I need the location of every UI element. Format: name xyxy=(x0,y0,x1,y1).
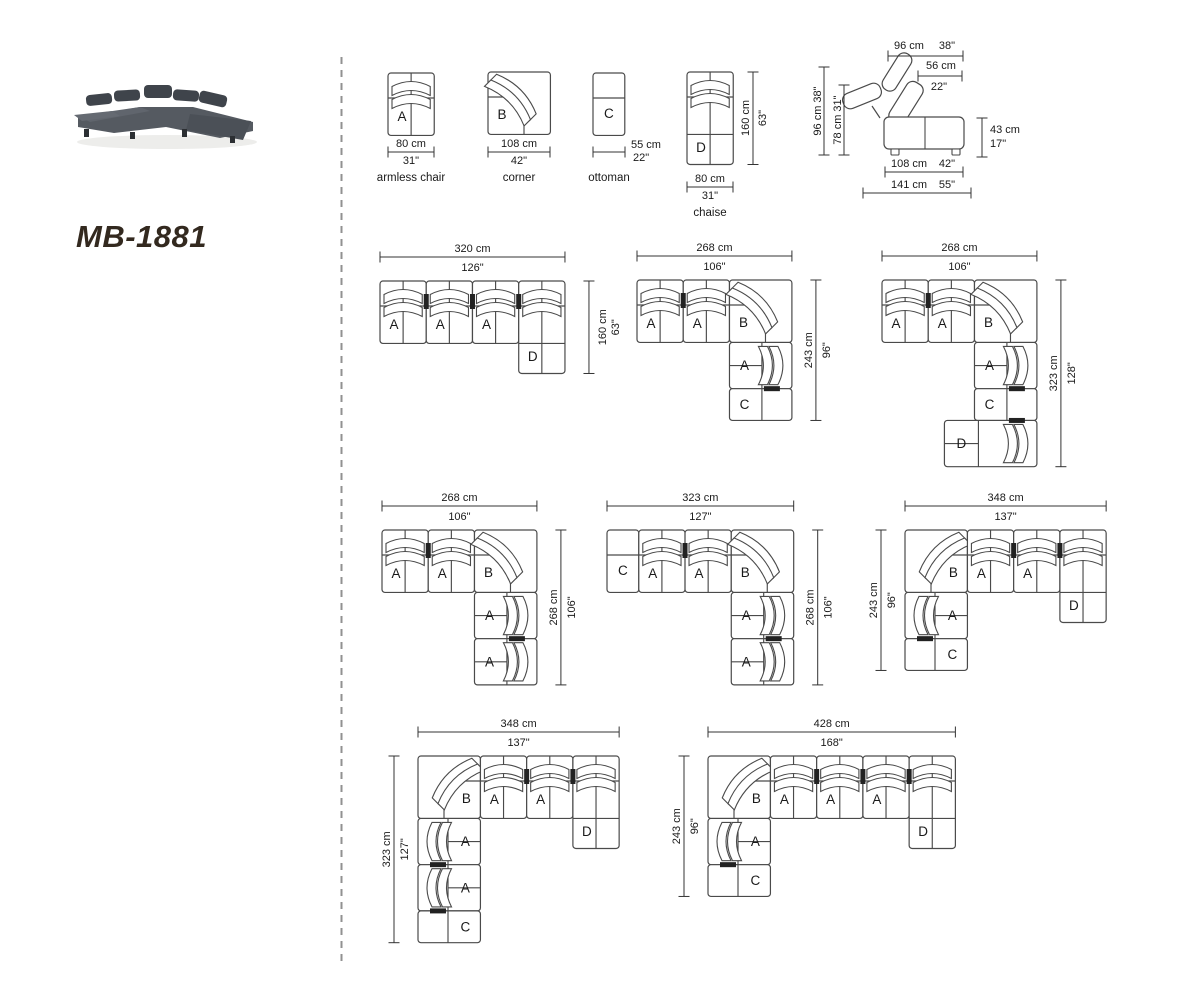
module-letter: C xyxy=(985,397,995,412)
module-letter: D xyxy=(528,349,538,364)
module-letter: A xyxy=(648,566,657,581)
module-B: B xyxy=(971,278,1037,342)
module-outline xyxy=(708,865,770,897)
legend-C-name: ottoman xyxy=(588,172,630,184)
junction-mark xyxy=(860,769,865,784)
module-letter: C xyxy=(618,563,628,578)
config-1-width-in: 126" xyxy=(461,262,483,274)
config-6-height-in: 96" xyxy=(886,592,898,608)
module-A: A xyxy=(382,530,428,592)
config-5-width-in: 127" xyxy=(689,511,711,523)
module-C: C xyxy=(974,389,1036,421)
junction-mark xyxy=(681,293,686,308)
junction-mark xyxy=(426,543,431,558)
junction-mark xyxy=(430,908,446,913)
module-D: D xyxy=(519,281,565,373)
config-7-height-in: 127" xyxy=(399,838,411,860)
side-left-total-text: 96 cm 38" xyxy=(812,86,824,135)
module-A: A xyxy=(426,281,472,343)
module-letter: D xyxy=(1069,598,1079,613)
config-6-height-cm: 243 cm xyxy=(868,582,880,618)
module-A: A xyxy=(388,73,434,135)
module-outline xyxy=(593,73,625,135)
module-A: A xyxy=(863,756,909,818)
seat-base xyxy=(884,117,964,149)
config-1-height-cm: 160 cm xyxy=(597,309,609,345)
module-letter: A xyxy=(872,792,881,807)
side-bottom-total-in: 55" xyxy=(939,179,955,191)
module-A: A xyxy=(474,639,536,685)
module-A: A xyxy=(905,592,967,638)
side-top-back-dim xyxy=(918,71,962,82)
junction-mark xyxy=(1011,543,1016,558)
config-8-height-in: 96" xyxy=(689,818,701,834)
module-letter: A xyxy=(1023,566,1032,581)
legend-D-name: chaise xyxy=(693,207,726,219)
module-letter: A xyxy=(740,358,749,373)
module-A: A xyxy=(731,639,793,685)
config-2-width-cm: 268 cm xyxy=(696,242,732,254)
module-A: A xyxy=(472,281,518,343)
config-1-diagram: AAAD320 cm126"160 cm63" xyxy=(380,243,622,373)
side-bottom-total-cm: 141 cm xyxy=(891,179,927,191)
legend-A: A80 cm31"armless chair xyxy=(377,73,446,184)
junction-mark xyxy=(424,294,429,309)
module-letter: C xyxy=(751,873,761,888)
junction-mark xyxy=(524,769,529,784)
module-letter: B xyxy=(752,791,761,806)
module-letter: A xyxy=(482,317,491,332)
module-outline xyxy=(607,530,639,592)
module-letter: B xyxy=(462,791,471,806)
legend-D-in: 31" xyxy=(702,190,718,202)
module-C: C xyxy=(905,639,967,671)
config-7-height-cm: 323 cm xyxy=(381,831,393,867)
config-2-width-in: 106" xyxy=(703,261,725,273)
config-8-width-cm: 428 cm xyxy=(814,718,850,730)
legend-B-in: 42" xyxy=(511,155,527,167)
module-letter: B xyxy=(741,565,750,580)
module-A: A xyxy=(527,756,573,818)
legend-D-height-cm: 160 cm xyxy=(740,100,752,136)
module-C: C xyxy=(607,530,639,592)
module-A: A xyxy=(928,280,974,342)
module-letter: A xyxy=(536,792,545,807)
module-letter: D xyxy=(696,140,706,155)
module-letter: B xyxy=(497,107,506,122)
module-B: B xyxy=(485,70,551,134)
module-letter: C xyxy=(604,106,614,121)
side-top-total-in: 38" xyxy=(939,40,955,52)
module-A: A xyxy=(380,281,426,343)
module-D: D xyxy=(1060,530,1106,622)
module-letter: A xyxy=(695,566,704,581)
module-letter: A xyxy=(485,654,494,669)
module-letter: A xyxy=(780,792,789,807)
config-8-width-in: 168" xyxy=(821,737,843,749)
module-A: A xyxy=(685,530,731,592)
config-3-width-in: 106" xyxy=(948,261,970,273)
config-2-height-in: 96" xyxy=(821,342,833,358)
junction-mark xyxy=(764,386,780,391)
junction-mark xyxy=(907,769,912,784)
module-letter: A xyxy=(397,109,406,124)
config-5-height-cm: 268 cm xyxy=(805,589,817,625)
config-7-diagram: BAADAAC348 cm137"323 cm127" xyxy=(381,718,619,943)
config-3-diagram: AABACD268 cm106"323 cm128" xyxy=(882,242,1078,467)
config-7-width-in: 137" xyxy=(507,737,529,749)
module-letter: C xyxy=(948,647,958,662)
config-1-height-dim xyxy=(583,281,594,373)
module-A: A xyxy=(817,756,863,818)
module-letter: A xyxy=(751,834,760,849)
module-B: B xyxy=(418,754,484,818)
config-4-diagram: AABAA268 cm106"268 cm106" xyxy=(382,492,578,685)
module-letter: A xyxy=(742,654,751,669)
module-B: B xyxy=(905,528,971,592)
junction-mark xyxy=(766,636,782,641)
module-letter: A xyxy=(826,792,835,807)
module-outline xyxy=(418,911,480,943)
module-A: A xyxy=(418,865,480,911)
module-A: A xyxy=(637,280,683,342)
module-C: C xyxy=(418,911,480,943)
module-letter: A xyxy=(977,566,986,581)
module-letter: A xyxy=(938,316,947,331)
module-B: B xyxy=(471,528,537,592)
config-6-diagram: BAADAC348 cm137"243 cm96" xyxy=(868,492,1106,670)
config-6-width-in: 137" xyxy=(994,511,1016,523)
module-A: A xyxy=(418,818,480,864)
module-B: B xyxy=(708,754,774,818)
config-3-width-cm: 268 cm xyxy=(941,242,977,254)
junction-mark xyxy=(509,636,525,641)
junction-mark xyxy=(720,862,736,867)
module-D: D xyxy=(909,756,955,848)
config-8-height-cm: 243 cm xyxy=(671,808,683,844)
side-top-total-cm: 96 cm xyxy=(894,40,924,52)
module-D: D xyxy=(573,756,619,848)
side-seat-height-in: 17" xyxy=(990,138,1006,150)
module-letter: A xyxy=(461,880,470,895)
config-8-diagram: BAAADAC428 cm168"243 cm96" xyxy=(671,718,955,896)
legend-C-in: 22" xyxy=(633,152,649,164)
junction-mark xyxy=(470,294,475,309)
legend-A-in: 31" xyxy=(403,155,419,167)
legend-D: D80 cm31"chaise160 cm63" xyxy=(687,72,769,219)
module-B: B xyxy=(728,528,794,592)
module-B: B xyxy=(726,278,792,342)
config-4-width-cm: 268 cm xyxy=(441,492,477,504)
module-letter: A xyxy=(391,566,400,581)
module-letter: A xyxy=(461,834,470,849)
legend-B-name: corner xyxy=(503,172,536,184)
legend-C-dim xyxy=(593,147,625,158)
module-letter: A xyxy=(389,317,398,332)
spec-sheet-page: MB-1881 AAAD320 cm126"160 cm63"AABAC268 … xyxy=(0,0,1200,981)
junction-mark xyxy=(570,769,575,784)
module-letter: A xyxy=(436,317,445,332)
legend-modules: A80 cm31"armless chairB108 cm42"cornerC5… xyxy=(377,70,769,219)
side-top-back-in: 22" xyxy=(931,81,947,93)
side-view-diagram: 96 cm38"56 cm22"96 cm 38"78 cm 31"43 cm1… xyxy=(812,40,1020,199)
config-4-height-cm: 268 cm xyxy=(548,589,560,625)
module-letter: A xyxy=(438,566,447,581)
foot xyxy=(952,149,960,155)
module-letter: B xyxy=(739,315,748,330)
config-1-height-in: 63" xyxy=(610,319,622,335)
module-A: A xyxy=(639,530,685,592)
config-4-height-in: 106" xyxy=(566,596,578,618)
module-A: A xyxy=(480,756,526,818)
legend-A-cm: 80 cm xyxy=(396,138,426,150)
config-3-height-in: 128" xyxy=(1066,362,1078,384)
junction-mark xyxy=(683,543,688,558)
module-A: A xyxy=(428,530,474,592)
module-A: A xyxy=(729,342,791,388)
module-A: A xyxy=(882,280,928,342)
module-D: D xyxy=(944,420,1036,466)
module-A: A xyxy=(1014,530,1060,592)
module-letter: D xyxy=(957,436,967,451)
module-letter: B xyxy=(484,565,493,580)
module-outline xyxy=(905,639,967,671)
config-5-height-in: 106" xyxy=(823,596,835,618)
foot xyxy=(891,149,899,155)
junction-mark xyxy=(814,769,819,784)
module-letter: A xyxy=(948,608,957,623)
module-letter: A xyxy=(985,358,994,373)
module-letter: A xyxy=(485,608,494,623)
headrest-shape xyxy=(840,81,883,111)
module-C: C xyxy=(593,73,625,135)
module-A: A xyxy=(974,342,1036,388)
module-letter: A xyxy=(742,608,751,623)
module-A: A xyxy=(770,756,816,818)
legend-C: C55 cm22"ottoman xyxy=(588,73,661,184)
config-6-width-cm: 348 cm xyxy=(988,492,1024,504)
side-seat-height-cm: 43 cm xyxy=(990,124,1020,136)
module-letter: A xyxy=(891,316,900,331)
side-bottom-seat-in: 42" xyxy=(939,158,955,170)
config-7-width-cm: 348 cm xyxy=(501,718,537,730)
module-letter: D xyxy=(918,824,928,839)
module-A: A xyxy=(683,280,729,342)
junction-mark xyxy=(430,862,446,867)
side-left-back-text: 78 cm 31" xyxy=(832,95,844,144)
module-letter: D xyxy=(582,824,592,839)
module-letter: A xyxy=(490,792,499,807)
module-letter: C xyxy=(461,919,471,934)
junction-mark xyxy=(516,294,521,309)
module-letter: A xyxy=(693,316,702,331)
legend-C-cm: 55 cm xyxy=(631,139,661,151)
config-5-diagram: CAABAA323 cm127"268 cm106" xyxy=(607,492,835,685)
config-1-width-cm: 320 cm xyxy=(454,243,490,255)
module-letter: B xyxy=(984,315,993,330)
legend-B-cm: 108 cm xyxy=(501,138,537,150)
legend-B: B108 cm42"corner xyxy=(485,70,551,184)
module-letter: C xyxy=(740,397,750,412)
config-3-height-cm: 323 cm xyxy=(1048,355,1060,391)
junction-mark xyxy=(1057,543,1062,558)
junction-mark xyxy=(1009,386,1025,391)
module-A: A xyxy=(967,530,1013,592)
config-4-width-in: 106" xyxy=(448,511,470,523)
module-C: C xyxy=(729,389,791,421)
module-A: A xyxy=(474,592,536,638)
headrest-stem xyxy=(872,106,880,118)
module-A: A xyxy=(708,818,770,864)
legend-D-height-in: 63" xyxy=(757,110,769,126)
module-letter: A xyxy=(646,316,655,331)
legend-A-name: armless chair xyxy=(377,172,446,184)
config-2-height-cm: 243 cm xyxy=(803,332,815,368)
module-A: A xyxy=(731,592,793,638)
side-top-back-cm: 56 cm xyxy=(926,60,956,72)
side-bottom-seat-cm: 108 cm xyxy=(891,158,927,170)
spec-diagram-canvas: AAAD320 cm126"160 cm63"AABAC268 cm106"24… xyxy=(0,0,1200,981)
module-C: C xyxy=(708,865,770,897)
junction-mark xyxy=(926,293,931,308)
junction-mark xyxy=(1009,418,1025,423)
module-D: D xyxy=(687,72,733,164)
module-letter: B xyxy=(949,565,958,580)
config-2-diagram: AABAC268 cm106"243 cm96" xyxy=(637,242,833,420)
junction-mark xyxy=(917,636,933,641)
config-5-width-cm: 323 cm xyxy=(682,492,718,504)
legend-D-cm: 80 cm xyxy=(695,173,725,185)
side-seat-height-dim xyxy=(977,118,988,157)
